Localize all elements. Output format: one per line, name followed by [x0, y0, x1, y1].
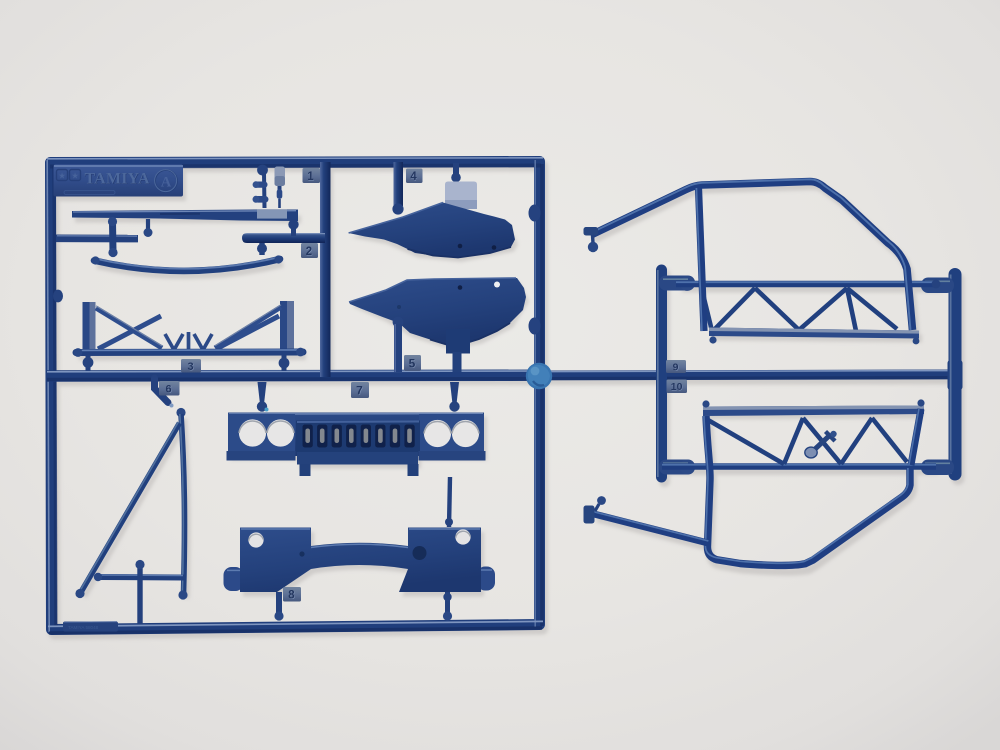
svg-text:7: 7	[356, 383, 363, 397]
svg-text:★: ★	[58, 171, 66, 181]
svg-text:6: 6	[166, 384, 172, 396]
svg-text:MADE IN JAPAN: MADE IN JAPAN	[100, 186, 130, 191]
svg-text:3: 3	[188, 361, 194, 373]
svg-text:★: ★	[71, 171, 79, 181]
svg-text:5: 5	[409, 356, 416, 370]
svg-text:10: 10	[671, 381, 683, 393]
svg-text:2: 2	[306, 246, 312, 258]
svg-text:A: A	[161, 175, 172, 191]
svg-text:1: 1	[307, 171, 314, 183]
svg-text:4: 4	[410, 171, 417, 183]
svg-text:9: 9	[673, 362, 679, 374]
svg-text:8: 8	[288, 589, 295, 601]
svg-text:TAMIYA 58048: TAMIYA 58048	[68, 625, 99, 630]
